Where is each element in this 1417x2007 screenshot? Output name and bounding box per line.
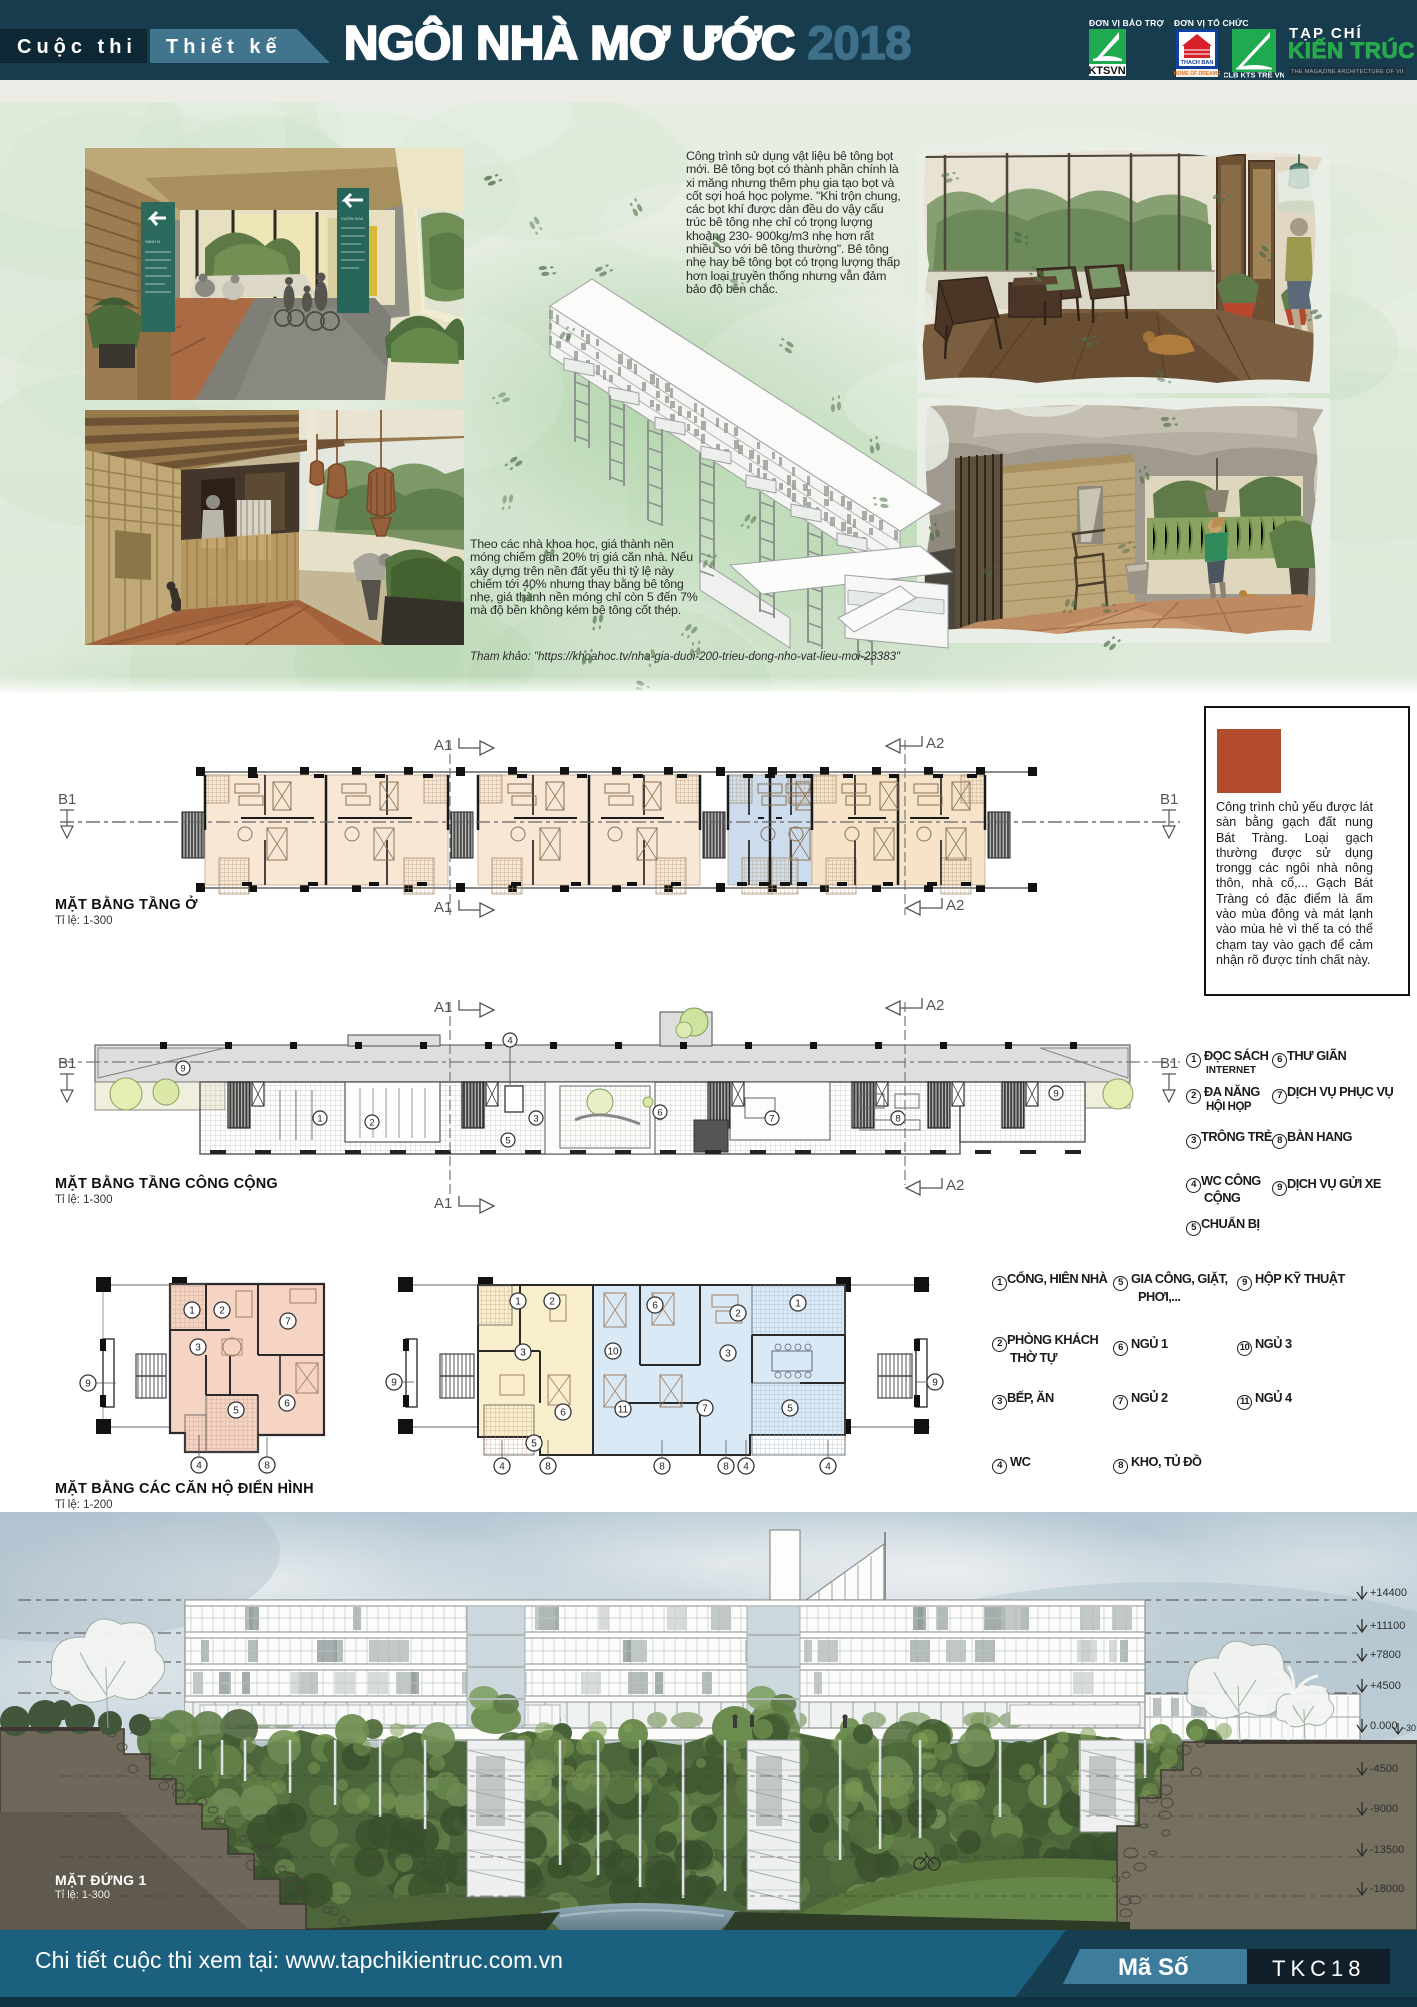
- svg-text:CLB KTS TRẺ VN: CLB KTS TRẺ VN: [1224, 71, 1284, 79]
- svg-text:5: 5: [531, 1439, 537, 1450]
- svg-text:A2: A2: [926, 735, 944, 752]
- svg-text:6: 6: [652, 1301, 658, 1312]
- svg-text:9: 9: [85, 1379, 91, 1390]
- svg-text:THACH BAN: THACH BAN: [1181, 60, 1214, 66]
- svg-text:4: 4: [507, 1036, 512, 1047]
- svg-text:10: 10: [607, 1347, 619, 1358]
- svg-text:B1: B1: [58, 791, 76, 808]
- svg-text:11: 11: [618, 1405, 629, 1416]
- svg-text:8: 8: [723, 1462, 729, 1473]
- svg-text:1: 1: [515, 1297, 521, 1308]
- svg-text:7: 7: [702, 1404, 708, 1415]
- svg-text:9: 9: [391, 1378, 397, 1389]
- svg-text:B1: B1: [1160, 791, 1178, 808]
- svg-text:1: 1: [795, 1299, 801, 1310]
- svg-text:8: 8: [264, 1461, 270, 1472]
- svg-text:A2: A2: [946, 897, 964, 914]
- svg-text:A2: A2: [946, 1177, 964, 1194]
- svg-text:4: 4: [825, 1462, 831, 1473]
- svg-text:-4500: -4500: [1370, 1763, 1398, 1775]
- svg-text:4: 4: [499, 1462, 505, 1473]
- svg-text:2: 2: [369, 1118, 374, 1129]
- svg-text:8: 8: [659, 1462, 665, 1473]
- svg-text:A1: A1: [434, 999, 452, 1016]
- svg-text:3: 3: [725, 1349, 731, 1360]
- svg-text:-30: -30: [1403, 1723, 1416, 1733]
- svg-text:2: 2: [219, 1306, 225, 1317]
- svg-text:9: 9: [932, 1378, 938, 1389]
- svg-text:+11100: +11100: [1370, 1620, 1405, 1632]
- svg-text:2: 2: [735, 1309, 741, 1320]
- svg-text:1: 1: [189, 1306, 195, 1317]
- svg-text:1: 1: [317, 1114, 322, 1125]
- svg-text:6: 6: [560, 1408, 566, 1419]
- svg-text:5: 5: [505, 1136, 510, 1147]
- svg-text:3: 3: [520, 1348, 526, 1359]
- svg-text:A2: A2: [926, 997, 944, 1014]
- svg-text:4: 4: [743, 1462, 749, 1473]
- svg-text:2: 2: [549, 1297, 555, 1308]
- svg-text:8: 8: [545, 1462, 551, 1473]
- svg-text:B1: B1: [1160, 1055, 1178, 1072]
- svg-text:-9000: -9000: [1370, 1803, 1398, 1815]
- svg-text:9: 9: [180, 1064, 185, 1075]
- svg-text:5: 5: [787, 1404, 793, 1415]
- svg-text:A1: A1: [434, 1195, 452, 1212]
- svg-text:0.000: 0.000: [1370, 1720, 1398, 1732]
- svg-text:3: 3: [533, 1114, 538, 1125]
- svg-text:A1: A1: [434, 737, 452, 754]
- svg-text:8: 8: [895, 1114, 900, 1125]
- svg-text:3: 3: [195, 1343, 201, 1354]
- svg-text:A1: A1: [434, 899, 452, 916]
- svg-text:4: 4: [196, 1461, 202, 1472]
- svg-text:7: 7: [285, 1317, 291, 1328]
- svg-text:+4500: +4500: [1370, 1680, 1401, 1692]
- svg-text:5: 5: [233, 1406, 239, 1417]
- svg-text:+14400: +14400: [1370, 1587, 1407, 1599]
- svg-text:7: 7: [769, 1114, 774, 1125]
- svg-text:-13500: -13500: [1370, 1844, 1404, 1856]
- svg-text:6: 6: [284, 1399, 290, 1410]
- svg-text:-18000: -18000: [1370, 1883, 1404, 1895]
- svg-text:B1: B1: [58, 1055, 76, 1072]
- svg-text:9: 9: [1053, 1089, 1058, 1100]
- svg-text:HOME OF DREAMS: HOME OF DREAMS: [1174, 71, 1220, 77]
- svg-text:+7800: +7800: [1370, 1649, 1401, 1661]
- svg-text:6: 6: [657, 1108, 662, 1119]
- svg-text:KTSVN: KTSVN: [1089, 65, 1126, 76]
